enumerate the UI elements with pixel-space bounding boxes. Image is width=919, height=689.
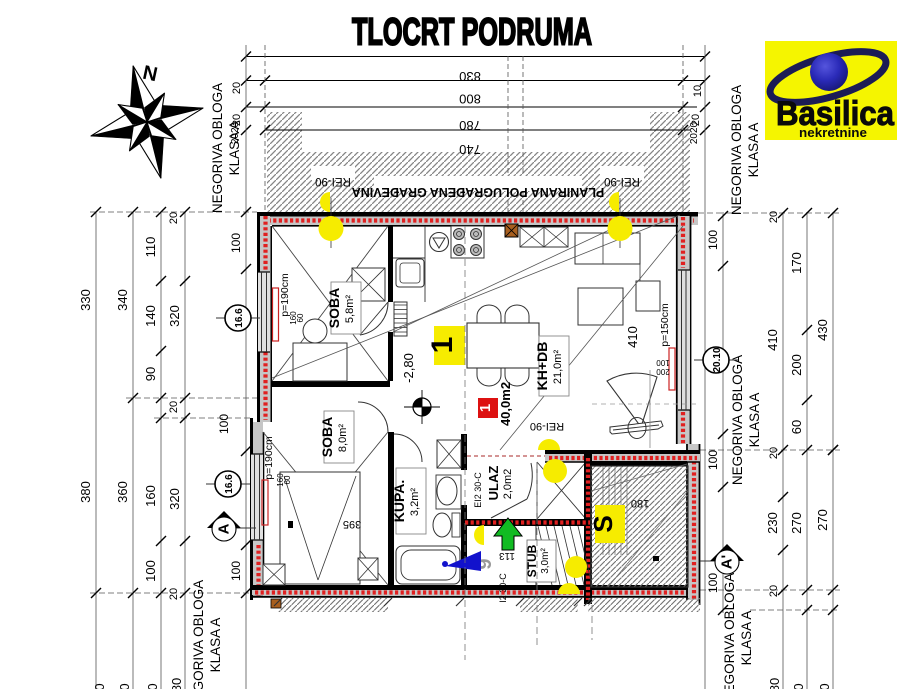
svg-text:KLASA A: KLASA A xyxy=(747,393,762,448)
svg-text:KH+DB: KH+DB xyxy=(534,342,550,391)
svg-text:20.10: 20.10 xyxy=(712,347,723,372)
svg-text:270: 270 xyxy=(815,509,830,531)
svg-text:200: 200 xyxy=(656,367,670,376)
svg-text:100: 100 xyxy=(229,233,243,253)
svg-text:KLASA A: KLASA A xyxy=(227,121,242,176)
svg-text:160: 160 xyxy=(143,485,158,507)
svg-text:nekretnine: nekretnine xyxy=(799,125,867,140)
svg-text:100: 100 xyxy=(229,561,243,581)
svg-text:140: 140 xyxy=(143,305,158,327)
svg-text:p=150cm: p=150cm xyxy=(659,303,671,347)
svg-text:TLOCRT PODRUMA: TLOCRT PODRUMA xyxy=(352,12,592,54)
svg-text:60: 60 xyxy=(283,475,292,484)
svg-text:NEGORIVA OBLOGA: NEGORIVA OBLOGA xyxy=(210,83,225,213)
svg-text:740: 740 xyxy=(459,142,481,157)
svg-text:1: 1 xyxy=(426,337,459,354)
svg-text:0: 0 xyxy=(817,683,832,689)
svg-text:20: 20 xyxy=(168,401,180,413)
svg-text:60: 60 xyxy=(296,313,305,322)
svg-text:170: 170 xyxy=(789,252,804,274)
svg-text:320: 320 xyxy=(167,305,182,327)
svg-text:100: 100 xyxy=(656,358,670,367)
svg-text:100: 100 xyxy=(706,450,720,470)
svg-text:395: 395 xyxy=(343,518,361,530)
svg-text:20: 20 xyxy=(168,588,180,600)
svg-text:p=190cm: p=190cm xyxy=(263,436,275,480)
svg-text:380: 380 xyxy=(78,481,93,503)
svg-text:100: 100 xyxy=(706,573,720,593)
svg-text:20: 20 xyxy=(768,585,780,597)
svg-text:100: 100 xyxy=(706,230,720,250)
svg-text:340: 340 xyxy=(115,289,130,311)
svg-text:S: S xyxy=(588,515,618,532)
svg-text:180: 180 xyxy=(631,497,649,509)
svg-text:410: 410 xyxy=(765,329,780,351)
svg-text:SOBA: SOBA xyxy=(319,417,335,457)
svg-text:360: 360 xyxy=(115,481,130,503)
svg-text:EI2 30-C: EI2 30-C xyxy=(473,472,483,508)
svg-text:230: 230 xyxy=(765,512,780,534)
svg-text:200: 200 xyxy=(789,354,804,376)
svg-text:NEGORIVA OBLOGA: NEGORIVA OBLOGA xyxy=(729,85,744,215)
svg-text:2020: 2020 xyxy=(689,121,700,144)
svg-text:NEGORIVA OBLOGA: NEGORIVA OBLOGA xyxy=(730,355,745,485)
svg-text:80: 80 xyxy=(169,678,184,689)
svg-text:100: 100 xyxy=(143,560,158,582)
svg-text:I2 30-C: I2 30-C xyxy=(498,573,508,603)
svg-text:2,0m2: 2,0m2 xyxy=(502,469,514,500)
svg-text:16.6: 16.6 xyxy=(224,474,235,494)
svg-text:780: 780 xyxy=(459,118,481,133)
svg-text:430: 430 xyxy=(815,319,830,341)
svg-text:SOBA: SOBA xyxy=(326,288,342,328)
svg-text:5,8m²: 5,8m² xyxy=(344,295,356,323)
svg-text:-2,80: -2,80 xyxy=(401,353,416,383)
svg-text:NEGORIVA OBLOGA: NEGORIVA OBLOGA xyxy=(722,573,737,689)
svg-text:REI-90: REI-90 xyxy=(530,420,564,432)
svg-text:100: 100 xyxy=(217,414,231,434)
svg-text:20: 20 xyxy=(168,212,180,224)
svg-text:16.6: 16.6 xyxy=(234,308,245,328)
svg-text:270: 270 xyxy=(789,512,804,534)
svg-text:20: 20 xyxy=(768,211,780,223)
svg-text:800: 800 xyxy=(459,92,481,107)
svg-text:0: 0 xyxy=(92,683,107,689)
svg-text:330: 330 xyxy=(78,289,93,311)
svg-text:20: 20 xyxy=(768,447,780,459)
svg-text:110: 110 xyxy=(143,237,158,258)
svg-text:8,0m²: 8,0m² xyxy=(337,424,349,452)
svg-text:113: 113 xyxy=(499,550,515,561)
svg-text:p=190cm: p=190cm xyxy=(279,273,291,317)
svg-text:0: 0 xyxy=(117,683,132,689)
svg-text:KLASA A: KLASA A xyxy=(208,618,223,673)
svg-text:NEGORIVA OBLOGA: NEGORIVA OBLOGA xyxy=(191,580,206,689)
svg-text:0: 0 xyxy=(791,683,806,689)
svg-text:A: A xyxy=(216,523,233,534)
svg-text:3,0m²: 3,0m² xyxy=(540,548,551,574)
svg-text:10: 10 xyxy=(692,85,704,97)
svg-text:410: 410 xyxy=(625,326,640,348)
svg-text:80: 80 xyxy=(767,678,782,689)
svg-text:60: 60 xyxy=(789,420,804,434)
svg-text:ULAZ: ULAZ xyxy=(486,466,501,501)
svg-text:0: 0 xyxy=(145,683,160,689)
svg-text:KLASA A: KLASA A xyxy=(739,611,754,666)
svg-text:A': A' xyxy=(719,555,736,569)
svg-text:90: 90 xyxy=(143,367,158,381)
svg-text:PLANIRANA POLUGRAĐENA GRAĐEVIN: PLANIRANA POLUGRAĐENA GRAĐEVINA xyxy=(352,185,605,199)
svg-text:3,2m²: 3,2m² xyxy=(409,488,421,516)
svg-text:20: 20 xyxy=(231,82,243,94)
svg-text:KUPA.: KUPA. xyxy=(391,480,407,523)
svg-text:REI-90: REI-90 xyxy=(315,175,351,187)
svg-text:1: 1 xyxy=(477,404,494,412)
svg-text:REI-90: REI-90 xyxy=(604,175,640,187)
svg-text:320: 320 xyxy=(167,488,182,510)
svg-text:40,0m2: 40,0m2 xyxy=(498,382,513,426)
svg-text:KLASA A: KLASA A xyxy=(746,123,761,178)
svg-text:21,0m²: 21,0m² xyxy=(552,350,564,385)
